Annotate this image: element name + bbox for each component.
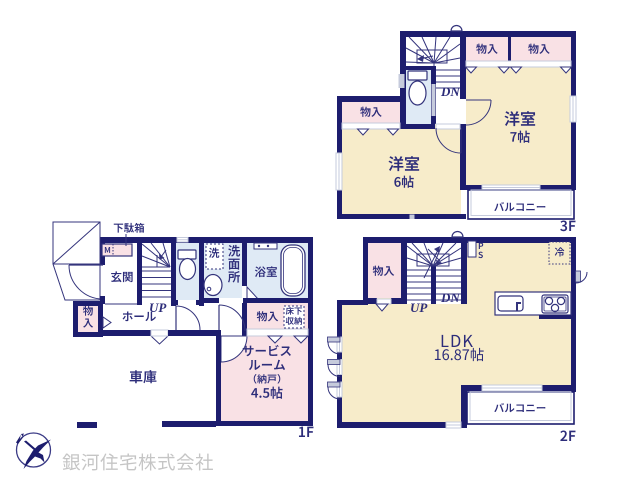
svg-text:DN: DN [440,290,460,305]
svg-text:DN: DN [440,84,460,99]
svg-text:UP: UP [410,300,428,315]
